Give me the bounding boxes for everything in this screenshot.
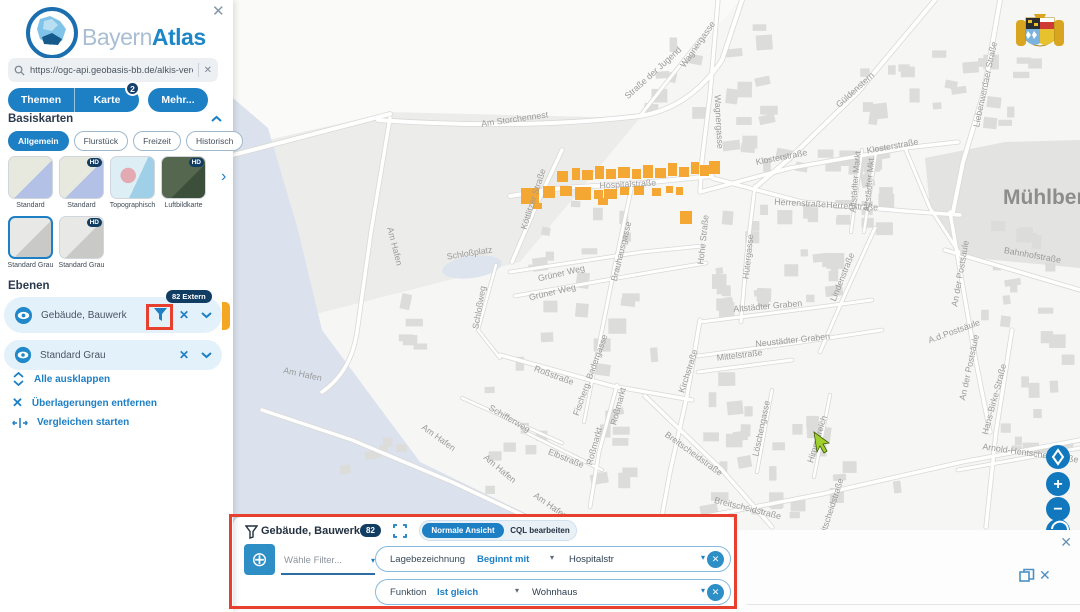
alkis-building[interactable]	[679, 167, 689, 177]
filter-panel-title: Gebäude, Bauwerk	[261, 525, 360, 537]
layer-remove-icon[interactable]: ✕	[179, 308, 189, 322]
expand-all-icon	[12, 372, 25, 386]
basemap-chip-historisch[interactable]: Historisch	[186, 131, 243, 151]
main-tabs: Themen Karte	[8, 88, 139, 112]
karte-tab-badge: 2	[125, 81, 140, 96]
choose-filter-select[interactable]: Wähle Filter... ▾	[281, 547, 375, 575]
alkis-building[interactable]	[594, 190, 603, 199]
alkis-building[interactable]	[598, 198, 608, 205]
visibility-eye-icon[interactable]	[14, 346, 32, 364]
alkis-building[interactable]	[680, 211, 692, 224]
chevron-up-icon[interactable]	[211, 115, 222, 123]
strip-divider	[747, 604, 1080, 605]
layer-row-standard-grau[interactable]: Standard Grau ✕	[4, 340, 222, 370]
cql-edit-toggle[interactable]: CQL bearbeiten	[506, 523, 574, 538]
remove-filter-button[interactable]: ✕	[707, 584, 724, 601]
zoom-out-icon: −	[1053, 501, 1062, 518]
basemap-thumbnail-label: Luftbildkarte	[158, 202, 209, 209]
action-label: Alle ausklappen	[34, 374, 110, 385]
chevron-down-icon[interactable]	[201, 351, 212, 359]
muehlberg-label: Mühlberg	[1003, 186, 1080, 209]
add-filter-button[interactable]: ⊕	[244, 544, 275, 575]
filter-value-input[interactable]: Hospitalstr	[569, 554, 614, 565]
alkis-building[interactable]	[604, 189, 617, 199]
basemap-thumbnail-topographisch[interactable]	[110, 156, 155, 199]
basemap-thumbnail-standard[interactable]: HD	[59, 156, 104, 199]
layer-drag-handle[interactable]	[222, 302, 230, 330]
filter-field-label: Funktion	[390, 587, 426, 598]
sidebar: ✕ BayernAtlas https://ogc-api.geobasis-b…	[0, 0, 233, 612]
search-icon	[14, 65, 25, 76]
ebenen-heading: Ebenen	[8, 280, 50, 292]
basemap-thumbnail-standard-grau[interactable]	[8, 216, 53, 259]
basemap-thumbnail-standard[interactable]	[8, 156, 53, 199]
filter-value-input[interactable]: Wohnhaus	[532, 587, 577, 598]
chevron-down-icon[interactable]	[201, 311, 212, 319]
tab-mehr[interactable]: Mehr...	[148, 88, 208, 112]
bayernatlas-app: Am StorchennestStraße der JugendWagnerga…	[0, 0, 1080, 612]
tab-themen[interactable]: Themen	[8, 88, 75, 112]
chevron-down-icon[interactable]: ▾	[701, 586, 705, 595]
alkis-building[interactable]	[557, 171, 568, 182]
chevron-down-icon[interactable]: ▾	[701, 553, 705, 562]
remove-overlays-icon: ✕	[12, 395, 23, 411]
compare-arrows-icon	[12, 418, 28, 428]
alkis-building[interactable]	[572, 168, 580, 180]
filter-field-label: Lagebezeichnung	[390, 554, 465, 565]
expand-panel-icon[interactable]	[393, 524, 407, 538]
action-label: Überlagerungen entfernen	[32, 398, 157, 409]
search-clear-icon[interactable]: ✕	[204, 65, 212, 76]
hd-badge: HD	[87, 218, 102, 227]
alkis-building[interactable]	[691, 162, 699, 174]
bottom-panel-close-icon[interactable]: ✕	[1060, 534, 1072, 551]
alkis-building[interactable]	[700, 165, 709, 176]
alkis-building[interactable]	[668, 163, 677, 176]
chevron-down-icon[interactable]: ▾	[515, 586, 519, 595]
action-start-compare[interactable]: Vergleichen starten	[12, 417, 129, 428]
layer-name: Gebäude, Bauwerk	[41, 310, 154, 321]
layer-name: Standard Grau	[40, 350, 179, 361]
filter-row-lagebezeichnung: Lagebezeichnung Beginnt mit ▾ Hospitalst…	[375, 546, 731, 572]
chevron-down-icon[interactable]: ▾	[550, 553, 554, 562]
basemap-chip-flurstück[interactable]: Flurstück	[74, 131, 128, 151]
alkis-building[interactable]	[655, 168, 666, 178]
alkis-building[interactable]	[676, 187, 683, 195]
layer-filter-icon[interactable]	[154, 308, 167, 322]
hd-badge: HD	[87, 158, 102, 167]
search-divider	[198, 63, 199, 77]
hd-badge: HD	[189, 158, 204, 167]
filter-panel: Gebäude, Bauwerk 82 Normale Ansicht CQL …	[233, 517, 735, 607]
normal-view-toggle[interactable]: Normale Ansicht	[422, 523, 504, 538]
basemap-thumbnail-luftbildkarte[interactable]: HD	[161, 156, 206, 199]
sidebar-close-icon[interactable]: ✕	[212, 4, 225, 19]
compare-close-icon[interactable]: ✕	[1039, 567, 1051, 584]
basemap-thumbnail-label: Standard Grau	[5, 262, 56, 269]
filter-operator-select[interactable]: Ist gleich	[437, 587, 478, 598]
duplicate-window-icon[interactable]	[1019, 568, 1035, 584]
filter-row-funktion: Funktion Ist gleich ▾ Wohnhaus ▾ ✕	[375, 579, 731, 605]
alkis-building[interactable]	[575, 187, 591, 200]
basemap-category-chips: AllgemeinFlurstückFreizeitHistorisch	[8, 131, 243, 151]
basemap-thumbnail-label: Topographisch	[107, 202, 158, 209]
basemap-thumbnail-label: Standard Grau	[56, 262, 107, 269]
basiskarten-heading: Basiskarten	[8, 113, 73, 125]
filter-funnel-outline-icon	[245, 525, 258, 539]
map-canvas[interactable]: Am StorchennestStraße der JugendWagnerga…	[233, 0, 1080, 530]
filter-operator-select[interactable]: Beginnt mit	[477, 554, 529, 565]
search-input[interactable]: https://ogc-api.geobasis-bb.de/alkis-ver…	[30, 65, 193, 75]
alkis-building[interactable]	[652, 188, 661, 196]
basemap-chip-freizeit[interactable]: Freizeit	[133, 131, 181, 151]
map-control-buttons: + −	[1046, 445, 1070, 530]
choose-filter-placeholder: Wähle Filter...	[284, 555, 371, 566]
alkis-building[interactable]	[709, 161, 720, 174]
action-remove-overlays[interactable]: ✕ Überlagerungen entfernen	[12, 395, 157, 411]
search-bar[interactable]: https://ogc-api.geobasis-bb.de/alkis-ver…	[8, 58, 218, 82]
alkis-building[interactable]	[582, 170, 593, 180]
basemap-chip-allgemein[interactable]: Allgemein	[8, 131, 69, 151]
view-toggle: Normale Ansicht CQL bearbeiten	[419, 520, 577, 541]
filter-result-count-badge: 82	[360, 524, 381, 537]
alkis-building[interactable]	[606, 169, 616, 179]
brand-title: BayernAtlas	[82, 24, 206, 51]
thumbnails-scroll-right-icon[interactable]: ›	[221, 168, 226, 186]
alkis-building[interactable]	[595, 166, 604, 179]
basemap-thumbnail-standard-grau[interactable]: HD	[59, 216, 104, 259]
alkis-building[interactable]	[666, 186, 673, 193]
remove-filter-button[interactable]: ✕	[707, 551, 724, 568]
alkis-building[interactable]	[560, 186, 572, 196]
layer-extern-badge: 82 Extern	[166, 290, 212, 303]
basemap-thumbnail-label: Standard	[5, 202, 56, 209]
visibility-eye-icon[interactable]	[14, 306, 33, 325]
action-expand-all[interactable]: Alle ausklappen	[12, 372, 110, 386]
bayernatlas-logo[interactable]	[26, 7, 78, 59]
layer-remove-icon[interactable]: ✕	[179, 348, 189, 362]
basemap-thumbnail-label: Standard	[56, 202, 107, 209]
zoom-in-icon: +	[1053, 476, 1062, 493]
action-label: Vergleichen starten	[37, 417, 129, 428]
alkis-building[interactable]	[543, 186, 555, 198]
alkis-building[interactable]	[643, 165, 653, 178]
alkis-building[interactable]	[618, 167, 630, 178]
